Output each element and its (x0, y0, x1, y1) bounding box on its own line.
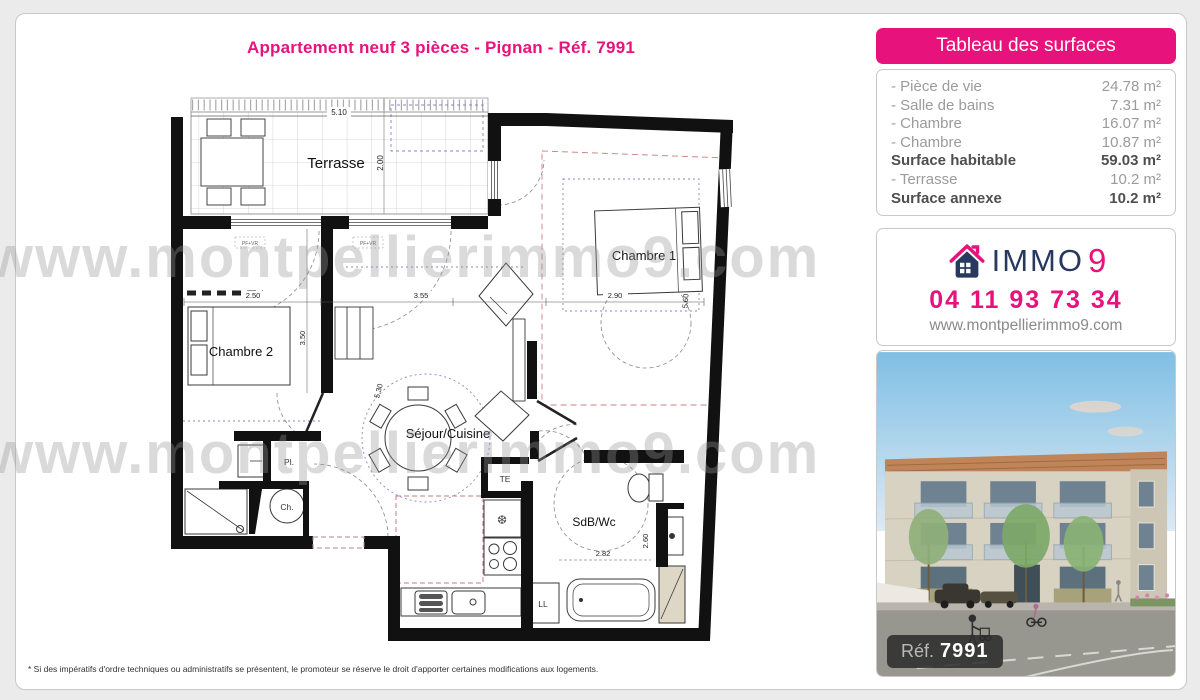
table-row: - Terrasse10.2 m² (891, 171, 1161, 190)
house-icon (946, 240, 988, 282)
row-value: 10.2 m² (1110, 171, 1161, 190)
row-label: - Pièce de vie (891, 78, 982, 97)
page-title: Appartement neuf 3 pièces - Pignan - Réf… (16, 38, 866, 58)
surfaces-table: - Pièce de vie24.78 m² - Salle de bains7… (876, 69, 1176, 216)
dim-win-mid: 3.55 (414, 291, 429, 300)
ref-value: 7991 (940, 640, 989, 662)
row-label: - Terrasse (891, 171, 957, 190)
agency-website: www.montpellierimmo9.com (930, 317, 1123, 335)
dim-sdb-w: 2.82 (596, 549, 611, 558)
row-label: Surface habitable (891, 152, 1016, 171)
room-label-sejour: Séjour/Cuisine (406, 426, 491, 441)
row-value: 10.2 m² (1109, 190, 1161, 209)
surfaces-header: Tableau des surfaces (876, 28, 1176, 64)
agency-panel: IMMO9 04 11 93 73 34 www.montpellierimmo… (876, 228, 1176, 346)
row-value: 7.31 m² (1110, 97, 1161, 116)
row-value: 16.07 m² (1102, 115, 1161, 134)
row-label: - Chambre (891, 115, 962, 134)
dim-ch1-depth: 5.60 (681, 293, 691, 308)
ref-label: Réf. (901, 641, 934, 661)
row-value: 10.87 m² (1102, 134, 1161, 153)
table-row: - Pièce de vie24.78 m² (891, 78, 1161, 97)
room-label-chambre1: Chambre 1 (612, 248, 676, 263)
dim-ch2-depth: 3.50 (298, 331, 307, 346)
room-label-chauffe: Ch. (280, 502, 293, 512)
building-render (877, 351, 1175, 677)
room-label-chambre2: Chambre 2 (209, 344, 273, 359)
agency-phone: 04 11 93 73 34 (929, 286, 1122, 315)
reference-badge: Réf.7991 (887, 635, 1003, 668)
flyer-card: Appartement neuf 3 pièces - Pignan - Réf… (15, 13, 1187, 690)
dim-bed1: 2.90 (608, 291, 623, 300)
table-row-total: Surface habitable59.03 m² (891, 152, 1161, 171)
row-label: Surface annexe (891, 190, 1002, 209)
brand-immo: IMMO (992, 243, 1084, 279)
floor-plan: 5.10 2.00 Terrasse (161, 86, 771, 651)
dim-sejour: 5.30 (372, 383, 384, 399)
dim-terrace-depth: 2.00 (376, 155, 385, 171)
room-label-ll: LL (538, 599, 548, 609)
room-label-sdb: SdB/Wc (572, 515, 615, 529)
disclaimer-text: * Si des impératifs d'ordre techniques o… (28, 664, 598, 674)
dim-terrace-width: 5.10 (331, 108, 347, 117)
window-tag-mid: PF+VR (360, 241, 377, 247)
agency-logo: IMMO9 (946, 240, 1107, 282)
room-label-te: TE (500, 474, 511, 484)
dim-win-left: 2.50 (246, 291, 261, 300)
table-row: - Chambre10.87 m² (891, 134, 1161, 153)
fridge-icon: ❆ (497, 513, 507, 527)
entrance-opening (313, 537, 364, 548)
terrace-area: 5.10 2.00 Terrasse (191, 98, 488, 214)
table-row: - Salle de bains7.31 m² (891, 97, 1161, 116)
window-tag-left: PF+VR (242, 241, 259, 247)
row-value: 59.03 m² (1101, 152, 1161, 171)
table-row: - Chambre16.07 m² (891, 115, 1161, 134)
table-row-total: Surface annexe10.2 m² (891, 190, 1161, 209)
shelf-unit (335, 307, 525, 401)
row-value: 24.78 m² (1102, 78, 1161, 97)
room-label-placard: Pl. (284, 457, 294, 467)
row-label: - Salle de bains (891, 97, 994, 116)
room-label-terrasse: Terrasse (307, 155, 365, 172)
building-photo: Réf.7991 (876, 350, 1176, 677)
flyer-page: Appartement neuf 3 pièces - Pignan - Réf… (0, 0, 1200, 700)
brand-nine: 9 (1088, 242, 1106, 280)
dim-sdb-d: 2.60 (641, 534, 650, 549)
row-label: - Chambre (891, 134, 962, 153)
kitchen-zone: ❆ (396, 496, 522, 616)
